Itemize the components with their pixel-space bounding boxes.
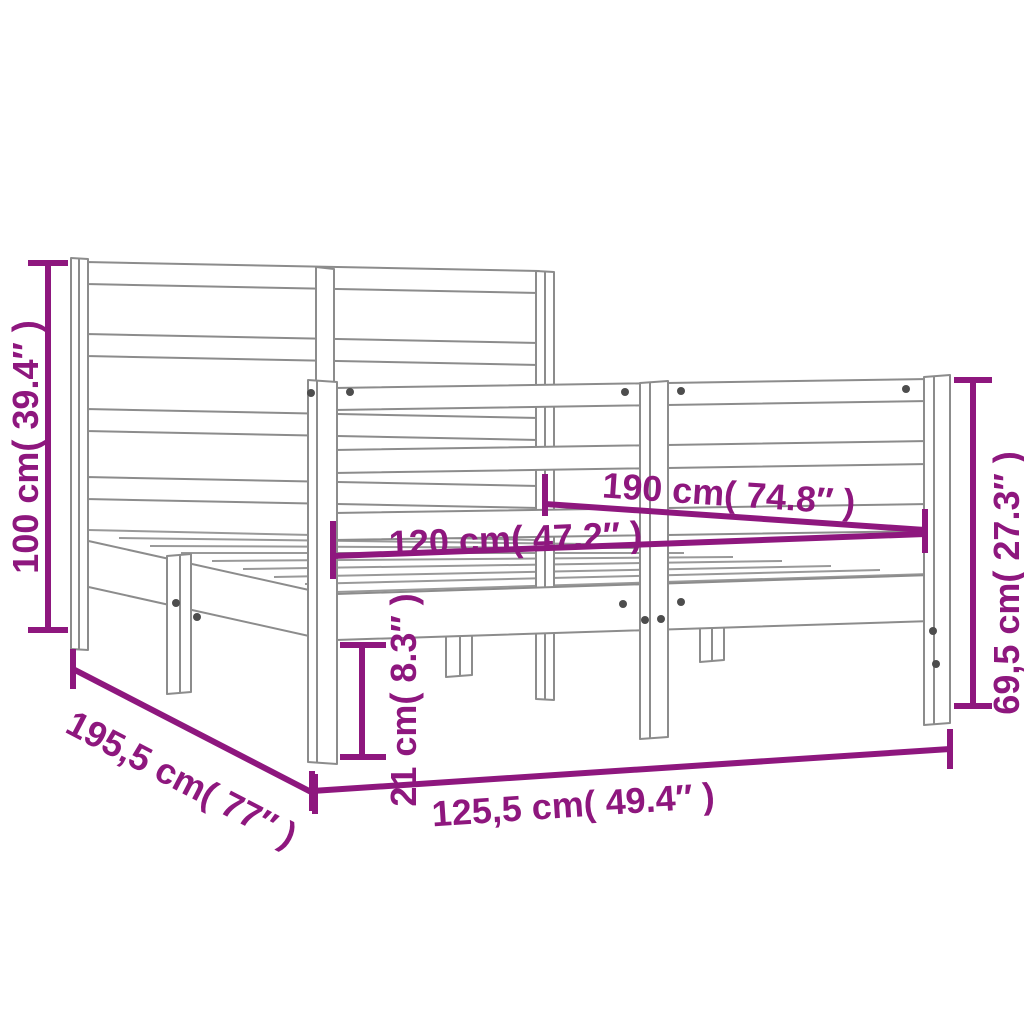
label-frame-width: 125,5 cm( 49.4″ ) <box>430 775 716 835</box>
left-side-rail <box>84 540 336 642</box>
bed-frame-drawing: 100 cm( 39.4″ ) 69,5 cm( 27.3″ ) 190 cm(… <box>0 0 1024 1024</box>
dimension-footboard-height: 69,5 cm( 27.3″ ) <box>954 380 1024 715</box>
dimension-headboard-height: 100 cm( 39.4″ ) <box>5 263 68 630</box>
footboard-rail-1 <box>334 379 929 410</box>
label-headboard-height: 100 cm( 39.4″ ) <box>5 320 46 573</box>
left-middle-leg <box>167 554 191 694</box>
front-side-rail <box>336 575 932 640</box>
label-mattress-width: 120 cm( 47.2″ ) <box>388 513 643 564</box>
footboard-middle-post <box>640 381 668 739</box>
headboard-rail-1 <box>86 262 539 293</box>
label-footboard-height: 69,5 cm( 27.3″ ) <box>986 451 1024 714</box>
headboard-rail-2 <box>86 334 539 365</box>
headboard-left-post <box>71 258 88 650</box>
dimension-diagram: 100 cm( 39.4″ ) 69,5 cm( 27.3″ ) 190 cm(… <box>0 0 1024 1024</box>
headboard-center-post <box>316 267 334 386</box>
label-base-height: 21 cm( 8.3″ ) <box>383 593 424 806</box>
